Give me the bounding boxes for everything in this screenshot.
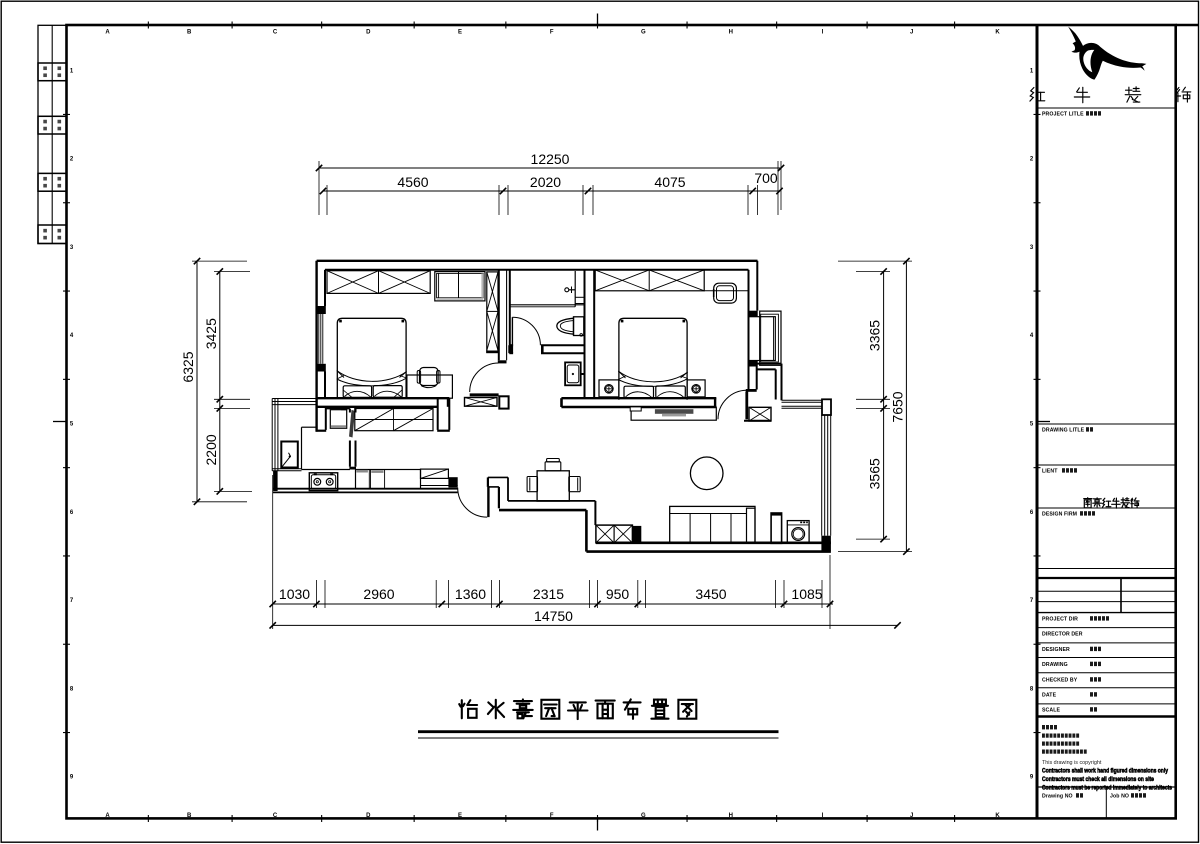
svg-text:C: C [273, 813, 278, 819]
svg-text:E: E [458, 813, 462, 819]
svg-text:B: B [187, 30, 192, 36]
svg-text:Contractors must check all dim: Contractors must check all dimensions on… [1042, 776, 1154, 783]
svg-text:12250: 12250 [531, 151, 570, 167]
svg-text:J: J [910, 30, 913, 36]
svg-text:PROJECT LITLE: PROJECT LITLE [1042, 112, 1084, 118]
svg-text:K: K [995, 30, 1000, 36]
svg-text:4075: 4075 [654, 174, 685, 190]
svg-text:C: C [273, 30, 278, 36]
svg-text:6325: 6325 [180, 351, 196, 382]
svg-text:DRAWING LITLE: DRAWING LITLE [1042, 428, 1085, 434]
svg-text:A: A [105, 30, 110, 36]
svg-text:LIENT: LIENT [1042, 469, 1058, 475]
svg-text:J: J [910, 813, 913, 819]
svg-text:DESIGN FIRM: DESIGN FIRM [1042, 512, 1077, 518]
svg-text:DIRECTOR DER: DIRECTOR DER [1042, 632, 1083, 638]
svg-text:PROJECT DIR: PROJECT DIR [1042, 617, 1078, 623]
svg-text:G: G [641, 30, 646, 36]
svg-text:950: 950 [606, 586, 630, 602]
svg-text:Contractors shall work hand fi: Contractors shall work hand figured dime… [1042, 768, 1168, 775]
svg-text:F: F [550, 813, 554, 819]
svg-text:2200: 2200 [203, 434, 219, 465]
svg-text:4560: 4560 [397, 174, 428, 190]
svg-text:1030: 1030 [279, 586, 310, 602]
svg-text:3365: 3365 [867, 320, 883, 351]
svg-text:CHECKED BY: CHECKED BY [1042, 678, 1078, 684]
svg-text:This drawing is copyright: This drawing is copyright [1042, 760, 1102, 766]
svg-text:DATE: DATE [1042, 693, 1057, 699]
svg-text:3425: 3425 [203, 318, 219, 349]
svg-text:2960: 2960 [363, 586, 394, 602]
svg-text:K: K [995, 813, 1000, 819]
svg-text:1360: 1360 [455, 586, 486, 602]
svg-text:G: G [641, 813, 646, 819]
svg-text:A: A [105, 813, 110, 819]
svg-text:Job NO: Job NO [1110, 794, 1129, 800]
svg-text:2315: 2315 [533, 586, 564, 602]
svg-text:Contractors must be reported i: Contractors must be reported immediately… [1042, 785, 1172, 792]
svg-text:SCALE: SCALE [1042, 708, 1061, 714]
svg-text:H: H [729, 813, 733, 819]
svg-text:700: 700 [754, 170, 778, 186]
svg-text:F: F [550, 30, 554, 36]
svg-text:14750: 14750 [534, 608, 573, 624]
svg-text:2020: 2020 [530, 174, 561, 190]
svg-text:DESIGNER: DESIGNER [1042, 647, 1070, 653]
svg-text:D: D [366, 30, 371, 36]
svg-text:7650: 7650 [889, 391, 905, 422]
svg-text:3450: 3450 [695, 586, 726, 602]
svg-text:Drawing NO: Drawing NO [1042, 794, 1073, 800]
svg-text:1085: 1085 [791, 586, 822, 602]
svg-text:D: D [366, 813, 371, 819]
svg-text:E: E [458, 30, 462, 36]
svg-text:H: H [729, 30, 733, 36]
svg-text:DRAWING: DRAWING [1042, 662, 1068, 668]
svg-text:3565: 3565 [867, 458, 883, 489]
svg-text:B: B [187, 813, 192, 819]
